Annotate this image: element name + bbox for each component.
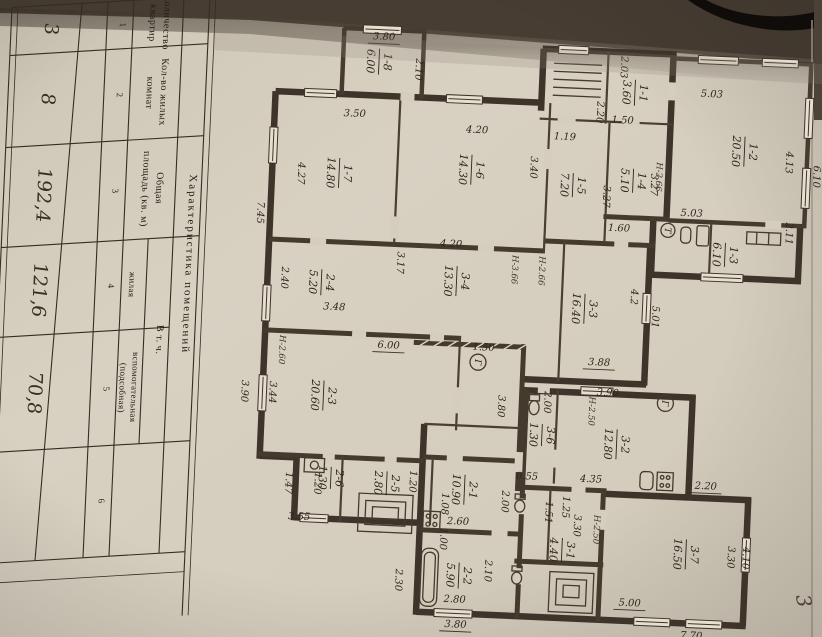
svg-text:1-4: 1-4: [635, 172, 649, 190]
dim-label: 3.48: [323, 301, 346, 313]
dim-label: 3.90: [238, 380, 250, 403]
dim-label: 1.25: [559, 496, 571, 519]
dim-label: 3.44: [266, 381, 278, 404]
svg-text:1-3: 1-3: [727, 246, 741, 264]
svg-text:1-7: 1-7: [341, 164, 355, 182]
height-label: Н-2.50: [590, 514, 601, 545]
col-header: комнат: [143, 76, 155, 110]
dim-label: 6.10: [810, 165, 822, 188]
svg-text:5.10: 5.10: [618, 168, 632, 193]
svg-text:5.20: 5.20: [306, 269, 320, 294]
room-label: 1-45.10: [618, 168, 649, 194]
dim-label: 4.35: [579, 474, 603, 486]
dim-label: 1.19: [554, 131, 577, 143]
value-rooms: 8: [37, 92, 60, 105]
scanned-floorplan-page: Характеристика помещений В т. ч. Количес…: [0, 0, 822, 637]
dim-label: 3.80: [444, 619, 467, 631]
dim-label: 3.30: [724, 546, 736, 569]
dim-label: 2.11: [782, 221, 794, 245]
dim-label: 1.50: [472, 342, 495, 354]
dim-label: 4.20: [465, 124, 489, 136]
dim-label: 3.30: [570, 514, 582, 537]
svg-text:7.20: 7.20: [557, 172, 571, 197]
room-label: 1-57.20: [557, 172, 588, 198]
col-header: Количество: [160, 0, 173, 50]
svg-text:13.30: 13.30: [441, 265, 455, 297]
value-apartments: 3: [40, 22, 63, 35]
col-number: 1: [118, 22, 128, 27]
svg-text:3-3: 3-3: [586, 300, 600, 318]
svg-text:3-4: 3-4: [458, 272, 472, 290]
dim-label: 2.00: [541, 390, 553, 414]
dim-label: 7.70: [680, 630, 703, 637]
dim-label: 2.10: [481, 558, 493, 582]
dim-label: 4.27: [295, 161, 307, 185]
value-living-area: 121,6: [27, 262, 51, 318]
dim-label: 1.20: [311, 472, 323, 495]
svg-text:3-1: 3-1: [563, 541, 577, 559]
height-label: Н-2.60: [276, 334, 287, 365]
dim-label: 5.03: [701, 89, 724, 101]
height-label: Н-2.66: [535, 255, 546, 286]
svg-text:14.80: 14.80: [323, 157, 337, 189]
room-label: 3-61.30: [526, 422, 557, 448]
dim-label: 1.08: [438, 492, 450, 515]
dim-label: 1.00: [437, 527, 449, 550]
svg-text:12.80: 12.80: [601, 428, 615, 460]
col-header: Общая: [153, 172, 165, 205]
dim-label: 1.50: [611, 115, 634, 127]
svg-text:14.30: 14.30: [456, 153, 470, 185]
value-total-area: 192,4: [31, 167, 55, 223]
dim-label: 2.20: [693, 481, 717, 493]
svg-text:1-2: 1-2: [746, 143, 760, 161]
svg-text:5.90: 5.90: [443, 563, 457, 588]
svg-text:20.60: 20.60: [308, 378, 322, 411]
dim-label: 2.20: [594, 100, 606, 124]
svg-text:3.60: 3.60: [619, 80, 633, 105]
svg-text:20.50: 20.50: [729, 134, 743, 167]
dim-label: 3.90: [596, 387, 619, 399]
svg-text:2-6: 2-6: [332, 468, 346, 487]
dim-label: 3.17: [394, 251, 406, 274]
col-header: квартир: [146, 4, 159, 42]
svg-text:6.10: 6.10: [709, 242, 723, 267]
dim-label: 3.80: [495, 395, 507, 418]
dim-label: 0.55: [516, 471, 539, 483]
svg-text:2-1: 2-1: [466, 480, 480, 499]
height-label: Н-2.66: [653, 161, 664, 192]
table-group-header: В т. ч.: [153, 325, 165, 355]
dim-label: 4.13: [783, 150, 795, 174]
dim-label: 5.01: [649, 305, 661, 328]
dim-label: 3.55: [288, 511, 311, 523]
dim-label: 3.88: [588, 357, 611, 369]
svg-text:3-7: 3-7: [687, 546, 701, 564]
dim-label: 1.20: [406, 470, 418, 493]
svg-text:3-6: 3-6: [543, 426, 557, 444]
room-label: 1-36.10: [709, 242, 740, 268]
dim-label: 2.30: [392, 568, 404, 592]
svg-text:3-2: 3-2: [618, 436, 632, 454]
dim-label: 3.50: [343, 108, 366, 120]
svg-text:16.50: 16.50: [670, 538, 684, 570]
dim-label: 2.80: [442, 594, 466, 606]
dim-label: 4.20: [439, 238, 463, 250]
svg-text:1-1: 1-1: [637, 84, 651, 102]
dim-label: 2.40: [278, 265, 290, 289]
dim-label: 1.47: [282, 472, 294, 495]
dim-label: 1.51: [542, 501, 554, 524]
dim-label: 6.00: [377, 340, 400, 352]
dim-label: 5.00: [618, 598, 641, 610]
svg-text:2-2: 2-2: [460, 566, 474, 585]
svg-text:1-5: 1-5: [574, 176, 588, 194]
col-number: 2: [115, 92, 125, 97]
dim-label: 2.60: [446, 516, 470, 528]
col-header: жилая: [127, 270, 138, 297]
svg-text:1.30: 1.30: [526, 422, 540, 447]
svg-text:16.40: 16.40: [569, 292, 583, 324]
dim-label: 4.2: [628, 288, 640, 305]
svg-text:2-4: 2-4: [323, 273, 337, 292]
svg-text:2.80: 2.80: [371, 469, 385, 495]
dim-label: 7.45: [254, 201, 266, 224]
dim-label: 1.60: [608, 223, 631, 235]
svg-text:2-5: 2-5: [388, 474, 402, 493]
dim-label: 2.00: [498, 489, 510, 513]
height-label: Н-3.66: [508, 254, 519, 285]
value-aux-area: 70,8: [23, 371, 47, 415]
dim-label: 4.10: [739, 546, 751, 570]
svg-text:1-6: 1-6: [473, 161, 487, 179]
svg-text:2-3: 2-3: [325, 386, 339, 405]
dim-label: 3.40: [527, 156, 539, 179]
floorplan-canvas: Характеристика помещений В т. ч. Количес…: [0, 0, 822, 637]
height-label: Н-2.50: [585, 395, 596, 426]
dim-label: 5.03: [680, 208, 703, 220]
dim-label: 3.27: [600, 185, 612, 208]
svg-text:4.40: 4.40: [546, 536, 560, 562]
